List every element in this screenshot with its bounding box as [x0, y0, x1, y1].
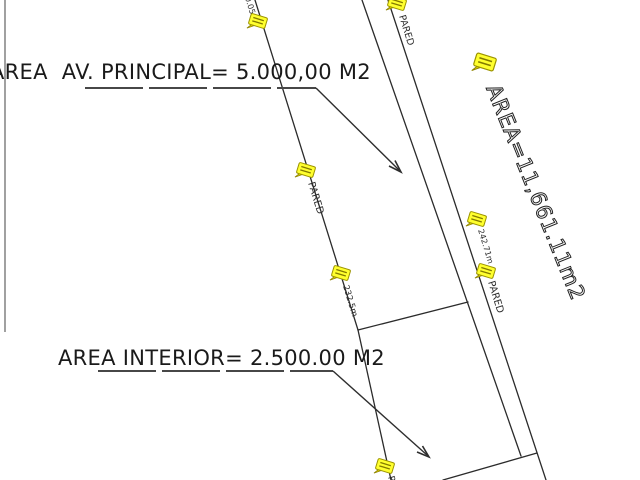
wall-label-right: PARED — [485, 280, 505, 315]
area-interior-label: AREA INTERIOR= 2.500.00 M2 — [58, 346, 385, 370]
interior-leader-line — [333, 371, 427, 455]
lower-divider-line — [443, 453, 537, 480]
wall-inner-line — [362, 0, 521, 456]
wall-label-top: PARED — [396, 14, 416, 47]
interior-divider-line — [358, 302, 468, 330]
note-marker-icon — [386, 0, 407, 15]
note-marker-icon — [295, 162, 316, 182]
principal-leader-line — [316, 88, 399, 170]
wall-outer-line — [388, 0, 546, 480]
area-total-label: AREA=11,661.11m2 — [481, 81, 590, 304]
wall-label-left: PARED — [305, 181, 325, 216]
measure-left-label: 232.5m — [340, 284, 359, 318]
measure-right-label: 242.71m — [476, 228, 495, 265]
survey-plan-drawing: AREA AV. PRINCIPAL= 5.000,00 M2 AREA INT… — [0, 0, 640, 480]
note-marker-icon — [472, 53, 497, 77]
area-principal-label: AREA AV. PRINCIPAL= 5.000,00 M2 — [0, 60, 371, 84]
note-marker-icon — [330, 265, 351, 285]
wall-label-bottom: PARED — [385, 475, 403, 480]
